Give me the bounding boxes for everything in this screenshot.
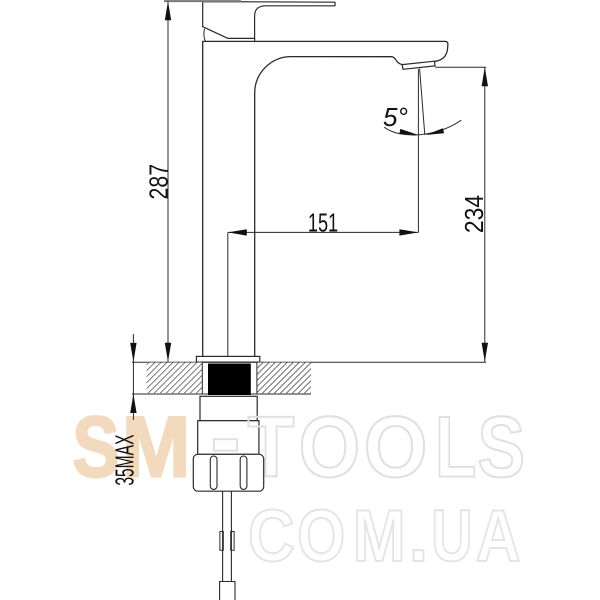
svg-text:C: C <box>248 496 295 577</box>
svg-text:S: S <box>478 400 526 496</box>
svg-text:5°: 5° <box>383 102 408 132</box>
svg-text:.: . <box>409 496 429 577</box>
svg-text:L: L <box>435 400 476 496</box>
svg-text:O: O <box>364 400 428 496</box>
svg-text:O: O <box>297 496 345 577</box>
svg-text:O: O <box>299 400 361 496</box>
svg-text:A: A <box>476 496 521 577</box>
svg-text:234: 234 <box>461 195 490 233</box>
svg-text:287: 287 <box>145 164 175 200</box>
svg-text:M: M <box>353 496 406 577</box>
svg-text:T: T <box>248 400 295 496</box>
svg-text:U: U <box>431 496 472 577</box>
svg-text:35MAX: 35MAX <box>110 435 139 486</box>
svg-text:151: 151 <box>308 208 338 237</box>
